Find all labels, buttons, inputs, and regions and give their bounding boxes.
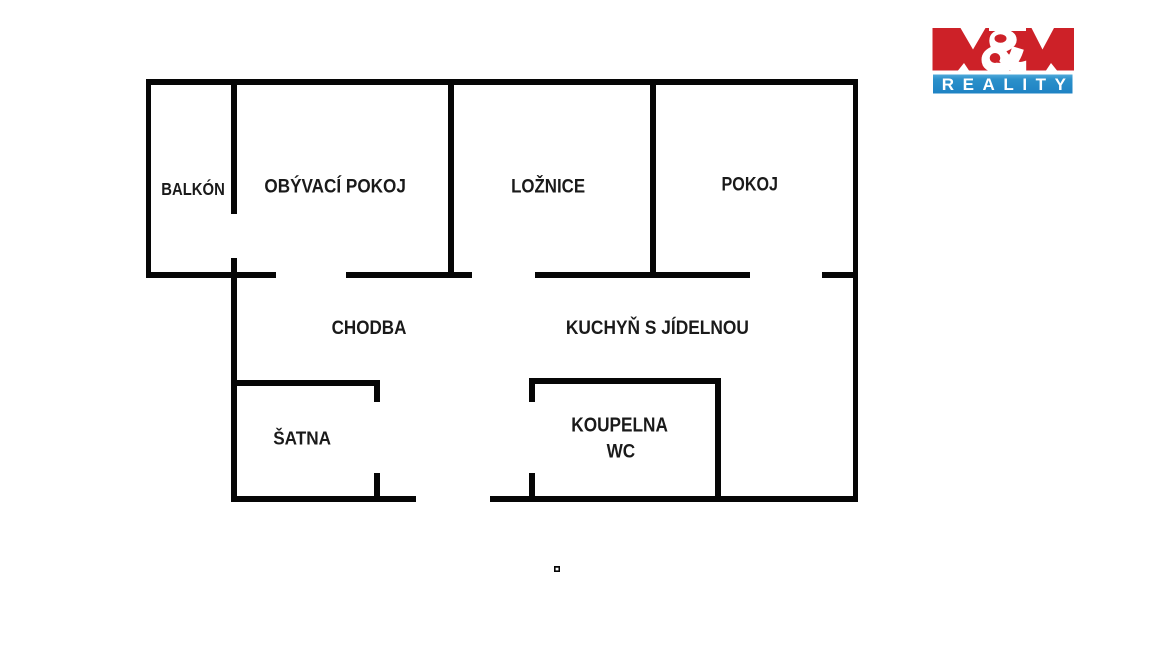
- svg-text:POKOJ: POKOJ: [722, 175, 779, 196]
- svg-text:ŠATNA: ŠATNA: [273, 427, 331, 448]
- svg-text:KOUPELNA: KOUPELNA: [571, 415, 668, 437]
- svg-text:&: &: [982, 21, 1026, 82]
- svg-text:LOŽNICE: LOŽNICE: [511, 176, 585, 198]
- svg-text:KUCHYŇ S JÍDELNOU: KUCHYŇ S JÍDELNOU: [566, 317, 749, 339]
- svg-text:OBÝVACÍ POKOJ: OBÝVACÍ POKOJ: [264, 175, 406, 197]
- svg-text:BALKÓN: BALKÓN: [161, 178, 225, 199]
- svg-text:CHODBA: CHODBA: [332, 318, 407, 339]
- svg-text:WC: WC: [607, 441, 636, 463]
